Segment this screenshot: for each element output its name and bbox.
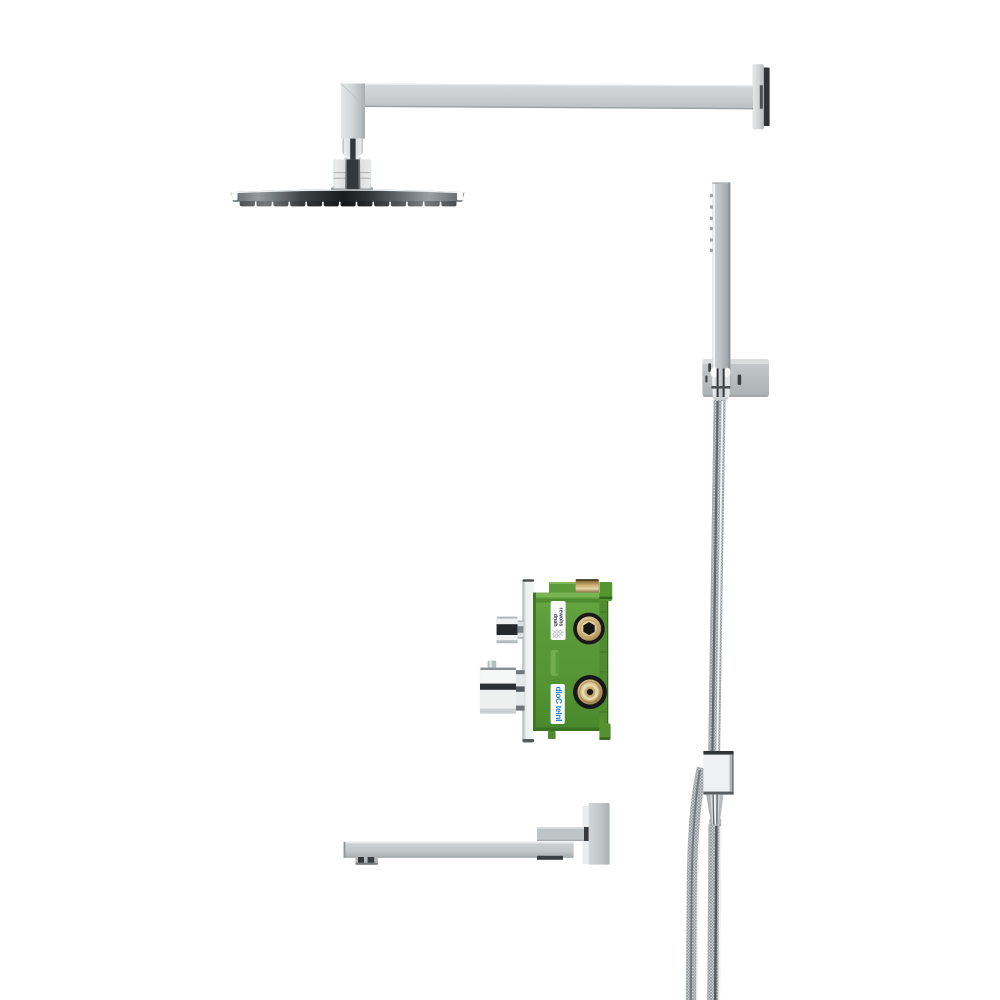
svg-text:dloC telnI: dloC telnI xyxy=(554,687,564,722)
svg-text:dnah: dnah xyxy=(552,614,558,627)
